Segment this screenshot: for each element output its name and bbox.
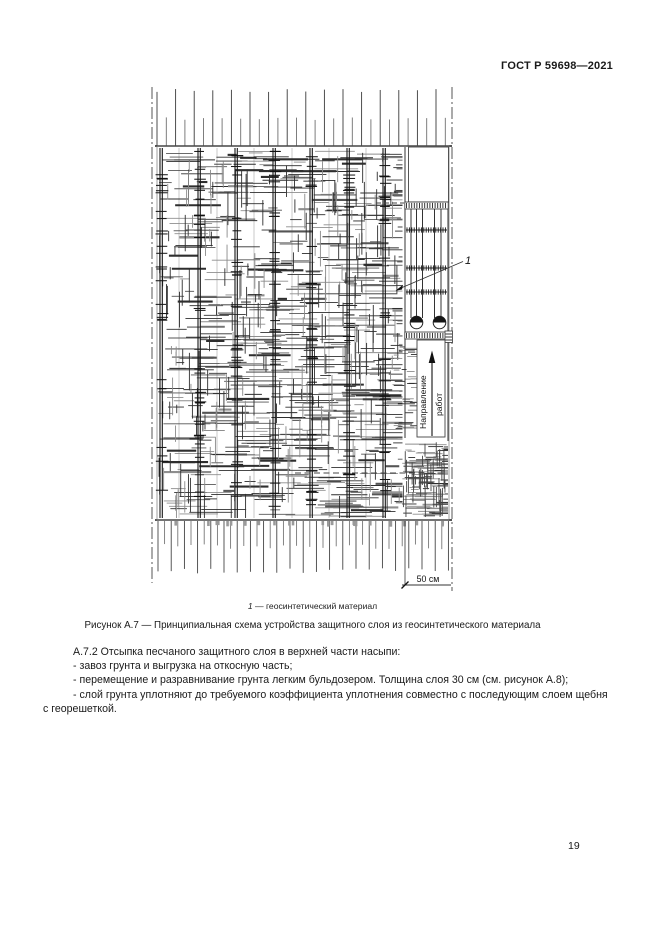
page-header: ГОСТ Р 59698—2021 [0,60,613,72]
figure-geometry [152,87,463,591]
body-line: - завоз грунта и выгрузка на откосную ча… [43,659,623,673]
figure-legend: 1 — геосинтетический материал [0,601,625,611]
figure-legend-text: — геосинтетический материал [253,601,378,611]
dimension-50cm-label: 50 см [417,574,440,584]
body-line: - перемещение и разравнивание грунта лег… [43,673,623,687]
direction-of-work-label-line2: работ [434,393,444,416]
callout-1-label: 1 [465,255,471,267]
figure-caption: Рисунок А.7 — Принципиальная схема устро… [0,620,625,631]
paragraph-a72: А.7.2 Отсыпка песчаного защитного слоя в… [43,645,623,716]
body-line: - слой грунта уплотняют до требуемого ко… [43,688,623,702]
body-line: с георешеткой. [43,702,623,716]
body-line: А.7.2 Отсыпка песчаного защитного слоя в… [43,645,623,659]
figure-a7-drawing: 1 Направление работ 50 см [145,85,485,600]
page-number: 19 [568,840,580,852]
direction-of-work-label-line1: Направление [418,375,428,429]
document-page: ГОСТ Р 59698—2021 1 Направление работ 50… [0,0,661,935]
